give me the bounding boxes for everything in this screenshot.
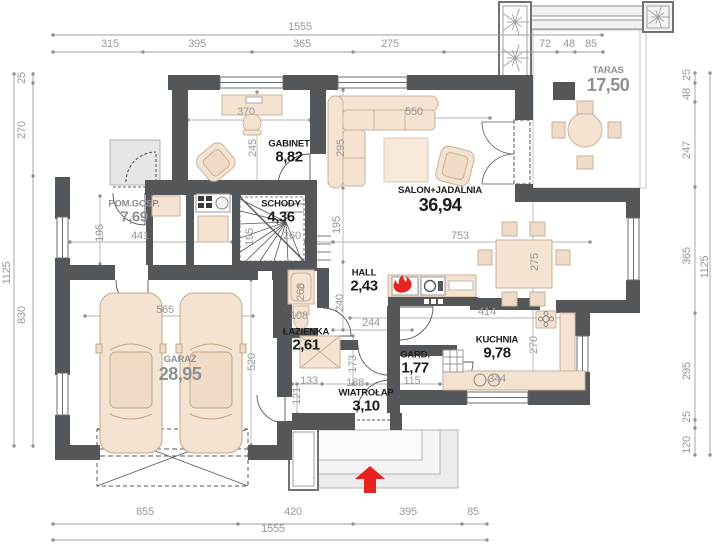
dim-tick [693, 453, 696, 456]
wall [387, 306, 400, 345]
dim-tick [51, 522, 54, 525]
wall [575, 313, 590, 336]
dim-tick [51, 538, 54, 541]
dim-tick [31, 174, 34, 177]
wall [186, 195, 194, 265]
dim-tick [83, 314, 86, 317]
window [467, 392, 528, 403]
dim-tick [31, 81, 34, 84]
dim-tick [251, 314, 254, 317]
dim-tick [320, 382, 323, 385]
wall [387, 356, 400, 413]
closet [300, 336, 340, 368]
dim-tick [693, 426, 696, 429]
wall [277, 421, 292, 460]
dim-tick [98, 194, 101, 197]
dim-tick [600, 33, 603, 36]
wall [168, 75, 220, 90]
window [220, 77, 283, 88]
door-arc [357, 380, 390, 413]
wall [283, 75, 338, 90]
dim-tick [693, 418, 696, 421]
window [57, 373, 68, 415]
dim-tick [351, 382, 354, 385]
dim-tick [341, 328, 344, 331]
dim-tick [351, 522, 354, 525]
wall [292, 413, 355, 430]
dim-tick [693, 311, 696, 314]
entrance-porch [318, 430, 458, 488]
window [57, 217, 68, 258]
stairs [240, 197, 331, 261]
terrace-column [553, 82, 575, 100]
dim-tick [255, 90, 258, 93]
wall [55, 177, 70, 219]
door-arc [358, 345, 388, 375]
wall [407, 75, 517, 90]
wall [55, 445, 100, 460]
window [338, 77, 407, 88]
dim-tick [341, 88, 344, 91]
dim-tick [365, 382, 368, 385]
door-arc [400, 307, 433, 340]
dim-tick [68, 240, 71, 243]
toilet [293, 306, 309, 329]
dim-tick [351, 334, 354, 337]
wall [145, 180, 317, 195]
shower [288, 270, 314, 304]
dim-tick [351, 50, 354, 53]
dim-tick [485, 522, 488, 525]
armchair [193, 140, 238, 185]
wall [528, 390, 590, 405]
dim-tick [348, 316, 351, 319]
armchair [434, 144, 476, 187]
window [628, 218, 639, 280]
dim-tick [331, 328, 334, 331]
wall [317, 268, 329, 308]
wall [515, 75, 533, 120]
entrance-planter [289, 428, 318, 490]
dim-tick [693, 100, 696, 103]
floor-plan-drawing [0, 0, 715, 550]
dim-tick [341, 186, 344, 189]
french-door [482, 120, 530, 184]
dim-tick [12, 444, 15, 447]
dining-table [478, 222, 570, 306]
door-arc [257, 395, 285, 423]
wall [390, 413, 402, 430]
wall [305, 195, 317, 265]
wall [626, 188, 640, 218]
dim-tick [12, 72, 15, 75]
dim-tick [141, 50, 144, 53]
car [96, 293, 166, 453]
rug [384, 138, 428, 182]
wall [533, 188, 640, 202]
kitchen-counter [443, 311, 585, 390]
wall [273, 268, 287, 334]
door-arc [113, 193, 145, 225]
dim-tick [51, 33, 54, 36]
window [577, 336, 588, 372]
dim-tick [693, 185, 696, 188]
dim-tick [485, 538, 488, 541]
fireplace-unit [388, 275, 478, 306]
dim-tick [51, 50, 54, 53]
wall [340, 340, 358, 350]
dim-tick [31, 444, 34, 447]
dim-tick [573, 50, 576, 53]
dim-tick [331, 240, 334, 243]
dim-tick [341, 260, 344, 263]
dim-tick [693, 71, 696, 74]
wall [515, 184, 533, 202]
dim-tick [488, 116, 491, 119]
floor-plan: POM.GOSP.7,69GABINET8,82SCHODY4,36SALON+… [0, 0, 715, 550]
dim-tick [31, 72, 34, 75]
wall [310, 90, 326, 154]
dim-tick [250, 50, 253, 53]
dim-tick [460, 522, 463, 525]
dim-tick [708, 71, 711, 74]
dim-tick [442, 50, 445, 53]
dim-tick [708, 453, 711, 456]
dim-tick [588, 240, 591, 243]
dim-tick [555, 50, 558, 53]
dim-tick [295, 382, 298, 385]
dim-tick [410, 328, 413, 331]
wall [556, 300, 590, 313]
dim-tick [438, 382, 441, 385]
dim-tick [601, 50, 604, 53]
dim-tick [693, 81, 696, 84]
door-arc [323, 308, 351, 336]
car [176, 293, 246, 453]
wall [55, 258, 70, 375]
wall [172, 90, 188, 182]
wall [70, 265, 115, 280]
dim-tick [236, 522, 239, 525]
desk [222, 95, 282, 135]
side-porch [110, 140, 160, 185]
